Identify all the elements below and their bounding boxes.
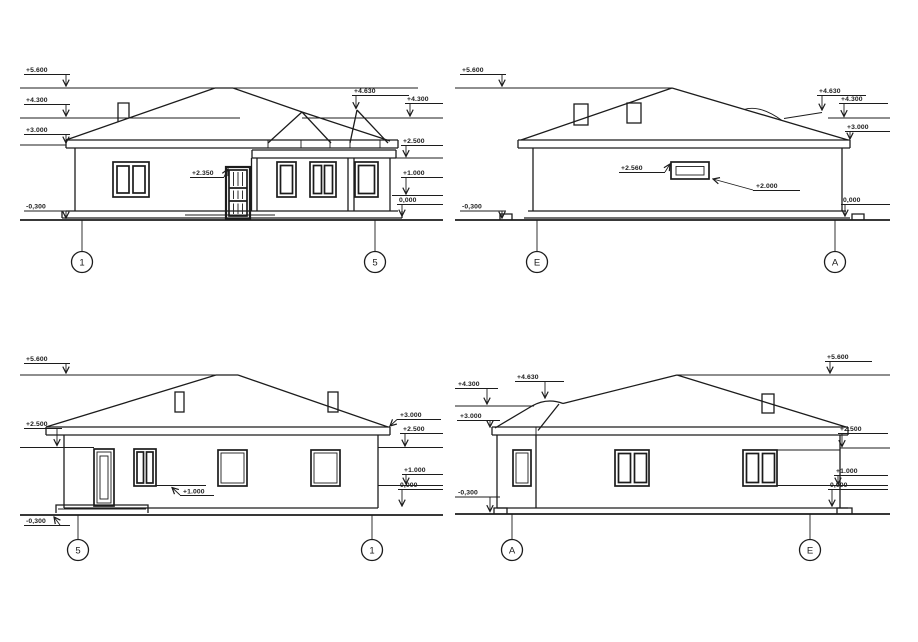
window [615,450,649,486]
side-elevation-e-a: +5.600 -0,300 +4.630 +4.300 +3.000 0,000 [455,67,890,273]
porch-slab [837,508,852,514]
axis-label: A [832,258,839,269]
elevations-drawing: +5.600 +4.300 +3.000 -0,300 +4.630 +4.30… [0,0,918,642]
window [277,162,296,197]
entrance-door [94,449,114,506]
level-label: +2.500 [26,421,48,428]
entrance-door [226,167,250,219]
rear-axes: 5 1 [68,515,383,561]
axis-label: A [509,546,516,557]
side-ae-levels: +4.300 +3.000 -0,300 +4.630 +5.600 +2.50… [455,354,890,512]
level-label: +4.300 [458,381,480,388]
level-label: 0,000 [830,482,848,489]
axis-label: 5 [75,546,80,557]
drawing-sheet: +5.600 +4.300 +3.000 -0,300 +4.630 +4.30… [0,0,918,642]
front-axes: 1 5 [72,220,386,273]
side-ae-axes: A E [502,514,821,561]
level-label: -0,300 [26,518,46,525]
level-label: +1.000 [403,170,425,177]
level-label: -0,300 [458,490,478,497]
level-label: +4.630 [354,88,376,95]
window [218,450,247,486]
window [311,450,340,486]
window [113,162,149,197]
level-label: +2.500 [403,138,425,145]
side-ae-wall [455,435,890,514]
axis-label: 5 [372,258,377,269]
side-ea-levels: +5.600 -0,300 +4.630 +4.300 +3.000 0,000 [455,67,890,218]
chimney [627,103,641,123]
window [310,162,336,197]
level-label: +5.600 [462,67,484,74]
side-ae-windows [513,450,777,486]
level-label: 0,000 [843,197,861,204]
axis-label: 1 [79,258,84,269]
level-label: +4.300 [407,96,429,103]
level-label: +4.630 [819,88,841,95]
level-label: -0,300 [26,204,46,211]
axis-label: 1 [369,546,374,557]
level-label: +5.600 [26,356,48,363]
door-level-note: +2.350 [190,169,228,178]
front-wall [20,148,443,220]
level-label: -0,300 [462,204,482,211]
sill-level-note: +1.000 [156,486,214,496]
porch-slab [494,508,507,514]
attic-vent [671,162,709,179]
front-roof [66,88,398,158]
rear-levels: +5.600 +2.500 -0,300 +3.000 +2.500 +1.00… [20,356,443,526]
rear-windows: +1.000 [94,449,340,506]
window [134,449,156,486]
level-label: +3.000 [26,127,48,134]
level-label: 0,000 [400,482,418,489]
rear-roof [46,375,390,435]
level-label: +1.000 [404,467,426,474]
level-label: +5.600 [26,67,48,74]
level-label: +2.500 [403,426,425,433]
window [743,450,777,486]
side-elevation-a-e: +4.300 +3.000 -0,300 +4.630 +5.600 +2.50… [455,354,890,561]
chimney [574,104,588,125]
rear-elevation: +5.600 +2.500 -0,300 +3.000 +2.500 +1.00… [20,356,443,561]
chimney [175,392,184,412]
front-elevation: +5.600 +4.300 +3.000 -0,300 +4.630 +4.30… [20,67,443,273]
porch-slab [852,214,864,220]
level-label: 0,000 [399,197,417,204]
level-label: +4.300 [26,97,48,104]
level-label: +3.000 [400,412,422,419]
level-label: +1.000 [183,489,205,496]
level-label: +1.000 [836,468,858,475]
level-label: +4.300 [841,96,863,103]
level-label: +3.000 [460,413,482,420]
window [355,162,378,197]
axis-label: E [534,258,540,269]
level-label: +4.630 [517,374,539,381]
side-ea-vent: +2.560 +2.000 [619,162,800,191]
side-ea-roof [518,88,850,148]
level-label: +2.000 [756,183,778,190]
level-label: +2.350 [192,170,214,177]
window [513,450,531,486]
level-label: +2.560 [621,165,643,172]
side-ea-wall [455,148,890,220]
level-label: +3.000 [847,124,869,131]
side-ea-axes: E A [527,220,846,273]
axis-label: E [807,546,813,557]
level-label: +5.600 [827,354,849,361]
rear-wall [20,435,443,515]
